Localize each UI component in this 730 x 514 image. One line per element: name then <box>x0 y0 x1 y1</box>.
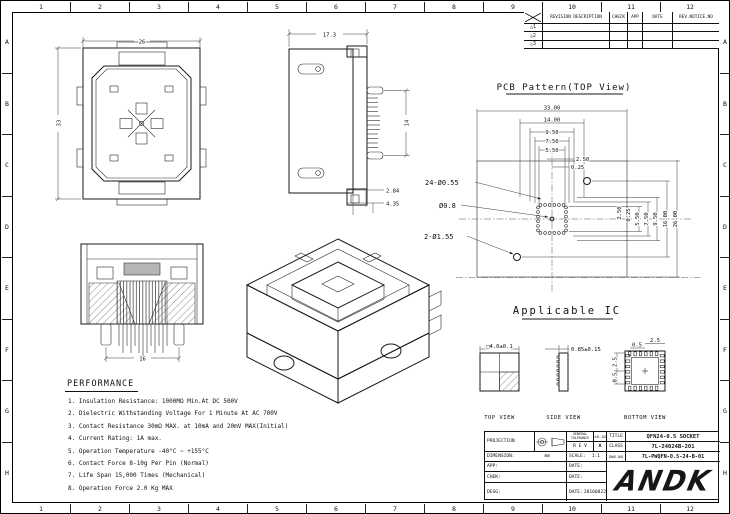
callout-label: Ø0.8 <box>439 202 456 210</box>
callout-label: 2-Ø1.55 <box>424 233 454 241</box>
dim-label: 2.50 <box>576 157 589 163</box>
dim-label: 2.84 <box>386 189 400 195</box>
revision-cell <box>642 41 672 48</box>
dim-label: 16 <box>139 357 146 363</box>
dim-label: 26 <box>139 40 146 46</box>
dim-label: 9.50 <box>545 130 558 136</box>
applicable-ic-title: Applicable IC <box>513 305 621 317</box>
desg-label: DESG: <box>485 483 567 501</box>
revision-cell <box>627 41 642 48</box>
revision-mark-icon <box>524 12 542 23</box>
chek-date-label: DATE: <box>567 472 607 483</box>
revision-cell <box>672 41 719 48</box>
title-block: PROJECTION GENERAL TOLERANCE ±0.10 R E V… <box>484 431 719 500</box>
dimension-value: mm <box>544 454 550 459</box>
dwg-label: DWG.NO <box>607 452 626 462</box>
dwg-value: 7L-PWQFN-0.5-24-B-01 <box>626 452 720 462</box>
dimension-label: DIMENSION: <box>487 454 515 459</box>
revision-row: △2 <box>524 32 719 40</box>
dim-label: □4.0±0.1 <box>486 344 513 350</box>
dim-label: 33 <box>57 120 63 127</box>
dim-label: 0.85±0.15 <box>571 347 601 353</box>
company-logo: ANDK <box>607 462 720 501</box>
performance-section: PERFORMANCE 1. Insulation Resistance: 10… <box>63 371 303 497</box>
performance-item: 2. Dielectric Withstanding Voltage For 1… <box>68 410 303 417</box>
revision-table: REVISION DESCRIPTION CHECK APP DATE REV.… <box>524 12 719 49</box>
projection-label: PROJECTION <box>485 432 535 452</box>
dim-label: 7.50 <box>545 139 558 145</box>
revision-cell <box>642 24 672 31</box>
dim-label: 2.50 <box>617 206 623 219</box>
desg-date-cell: DATE: 20160822 <box>567 483 607 501</box>
title-label: TITLE <box>607 432 626 442</box>
revision-row: △3 <box>524 41 719 49</box>
revision-cell <box>542 32 609 39</box>
revision-mark: △3 <box>524 41 542 48</box>
revision-cell <box>609 32 627 39</box>
company-logo-text: ANDK <box>613 465 715 498</box>
performance-item: 3. Contact Resistance 30mΩ MAX. at 10mA … <box>68 423 303 430</box>
dim-label: 2.5 <box>650 338 660 344</box>
revision-cell <box>672 24 719 31</box>
dim-label: 7.50 <box>644 212 650 225</box>
revision-table-header: REVISION DESCRIPTION CHECK APP DATE REV.… <box>524 12 719 24</box>
dim-label: 0.5 <box>632 343 642 349</box>
drawing-sheet: 123456789101112 123456789101112 ABCDEFGH… <box>0 0 730 514</box>
tolerance-value: ±0.10 <box>594 432 607 442</box>
dimension-cell: DIMENSION: mm <box>485 452 567 462</box>
dim-label: 9.50 <box>653 212 659 225</box>
revision-col-app: APP <box>627 12 642 23</box>
desg-date-label: DATE: <box>569 490 583 495</box>
scale-value: 1:1 <box>592 454 600 459</box>
dim-label: 2.5 <box>613 357 619 367</box>
app-label: APP: <box>485 462 567 472</box>
revision-cell <box>609 24 627 31</box>
class-value: 7L-24024B-201 <box>626 442 720 452</box>
ic-bottom-view-label: BOTTOM VIEW <box>624 415 666 421</box>
performance-item: 1. Insulation Resistance: 1000MΩ Min.At … <box>68 398 303 405</box>
revision-mark: △2 <box>524 32 542 39</box>
revision-col-check: CHECK <box>609 12 627 23</box>
revision-cell <box>627 32 642 39</box>
dim-label: 17.3 <box>323 33 336 39</box>
dim-label: 5.50 <box>635 212 641 225</box>
applicable-ic-section: Applicable IC □4.0±0.1 TOP VIEW 0. <box>480 305 666 421</box>
performance-item: 8. Operation Force 2.0 Kg MAX <box>68 485 303 492</box>
ic-block <box>124 263 160 275</box>
dim-label: 4.35 <box>386 202 399 208</box>
callout-label: 24-Ø0.55 <box>425 179 459 187</box>
desg-date-value: 20160822 <box>584 490 606 495</box>
revision-cell <box>542 41 609 48</box>
revision-mark: △1 <box>524 24 542 31</box>
dim-label: 33.00 <box>544 106 561 112</box>
ic-side-view-label: SIDE VIEW <box>546 415 580 421</box>
rev-value: A <box>594 442 607 452</box>
pcb-pattern: PCB Pattern(TOP View) <box>424 83 701 293</box>
revision-row: △1 <box>524 24 719 32</box>
revision-col-description: REVISION DESCRIPTION <box>542 12 609 23</box>
dim-label: 0.25 <box>626 208 632 221</box>
scale-cell: SCALE: 1:1 <box>567 452 607 462</box>
performance-item: 7. Life Span 15,000 Times (Mechanical) <box>68 472 303 479</box>
socket-top-view: 26 33 <box>55 37 206 205</box>
scale-label: SCALE: <box>569 454 586 459</box>
dim-label: 5.50 <box>545 148 558 154</box>
performance-title: PERFORMANCE <box>65 379 138 392</box>
socket-side-view: 17.3 14 2.84 4.35 <box>287 29 411 215</box>
performance-item: 5. Operation Temperature -40°C ~ +155°C <box>68 448 303 455</box>
revision-cell <box>542 24 609 31</box>
dim-label: 14 <box>405 119 411 126</box>
rev-label: R E V <box>567 442 594 452</box>
revision-cell <box>609 41 627 48</box>
revision-cell <box>672 32 719 39</box>
dim-label: 16.00 <box>663 211 669 228</box>
performance-item: 4. Current Rating: 1A max. <box>68 435 303 442</box>
first-angle-projection-icon <box>535 432 567 452</box>
dim-label: 0.25 <box>571 165 584 171</box>
pcb-pattern-title: PCB Pattern(TOP View) <box>497 83 632 93</box>
revision-cell <box>642 32 672 39</box>
class-label: CLASS <box>607 442 626 452</box>
performance-list: 1. Insulation Resistance: 1000MΩ Min.At … <box>63 398 303 492</box>
title-value: QFN24-0.5 SOCKET <box>626 432 720 442</box>
revision-col-notice: REV.NOTICE.NO <box>672 12 719 23</box>
tolerance-label: GENERAL TOLERANCE <box>567 432 594 442</box>
chek-label: CHEK: <box>485 472 567 483</box>
ic-top-view-label: TOP VIEW <box>484 415 515 421</box>
revision-col-date: DATE <box>642 12 672 23</box>
dim-label: 0.5 <box>613 373 619 383</box>
revision-cell <box>627 24 642 31</box>
app-date-label: DATE: <box>567 462 607 472</box>
socket-front-section-view: 16 <box>81 244 203 363</box>
performance-item: 6. Contact Force 8-10g Per Pin (Normal) <box>68 460 303 467</box>
dim-label: 26.00 <box>673 211 679 228</box>
dim-label: 14.00 <box>544 118 561 124</box>
